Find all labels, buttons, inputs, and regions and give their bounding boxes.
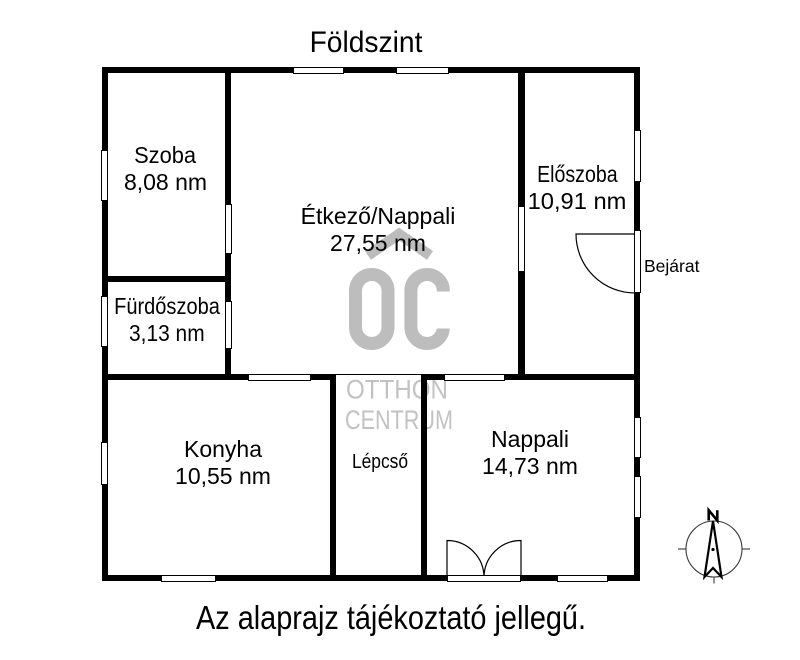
svg-text:CENTRUM: CENTRUM	[345, 405, 453, 435]
